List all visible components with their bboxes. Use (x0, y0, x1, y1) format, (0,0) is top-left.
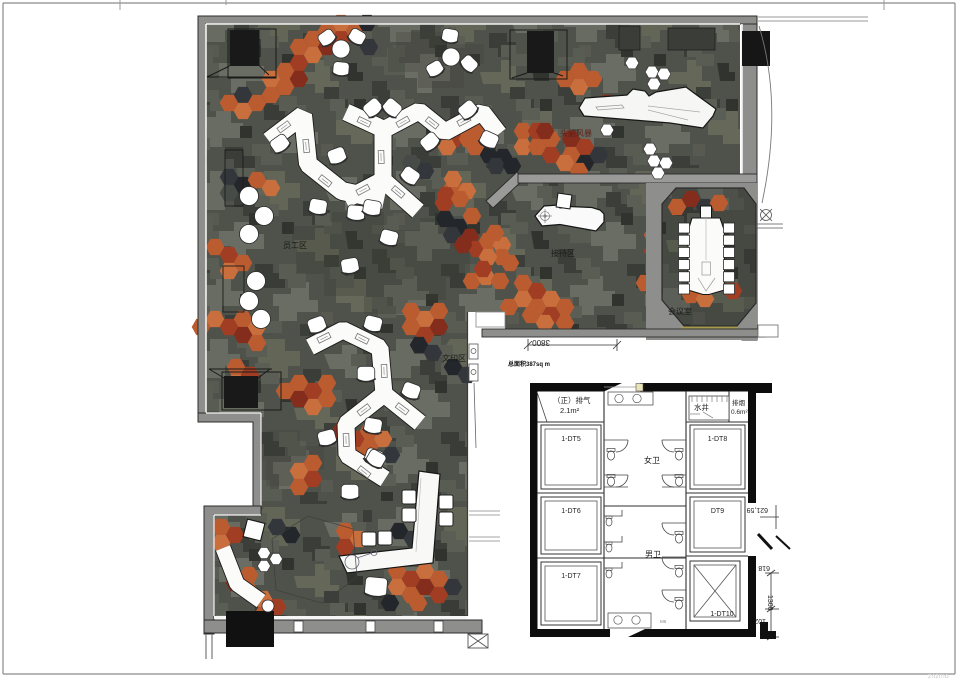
svg-text:1-DT5: 1-DT5 (561, 436, 581, 443)
svg-text:0.6m²: 0.6m² (731, 409, 748, 416)
svg-text:女卫: 女卫 (644, 455, 660, 465)
svg-text:1300: 1300 (766, 595, 773, 611)
svg-text:618: 618 (758, 564, 770, 571)
svg-text:文印区: 文印区 (442, 353, 466, 363)
svg-text:1-DT10: 1-DT10 (710, 611, 733, 618)
svg-text:3800: 3800 (532, 338, 550, 347)
svg-text:员工区: 员工区 (283, 241, 307, 250)
svg-text:621,59: 621,59 (746, 506, 768, 513)
svg-text:1-DT6: 1-DT6 (561, 508, 581, 515)
svg-text:排烟: 排烟 (732, 398, 746, 407)
svg-text:znzmo: znzmo (928, 673, 949, 680)
svg-text:1-DT7: 1-DT7 (561, 573, 581, 580)
svg-text:2.1m²: 2.1m² (560, 406, 580, 415)
svg-text:1-DT8: 1-DT8 (708, 436, 728, 443)
svg-text:男卫: 男卫 (645, 550, 661, 559)
svg-text:102: 102 (754, 617, 766, 624)
svg-text:M6: M6 (660, 619, 667, 624)
svg-text:会议室: 会议室 (668, 306, 692, 316)
svg-text:接待区: 接待区 (551, 248, 575, 258)
svg-text:水井: 水井 (694, 402, 709, 412)
svg-text:头脑风暴: 头脑风暴 (560, 128, 592, 138)
svg-text:DT9: DT9 (711, 508, 724, 515)
svg-text:总面积387sq m: 总面积387sq m (508, 360, 550, 368)
svg-text:（正）排气: （正）排气 (553, 395, 591, 405)
